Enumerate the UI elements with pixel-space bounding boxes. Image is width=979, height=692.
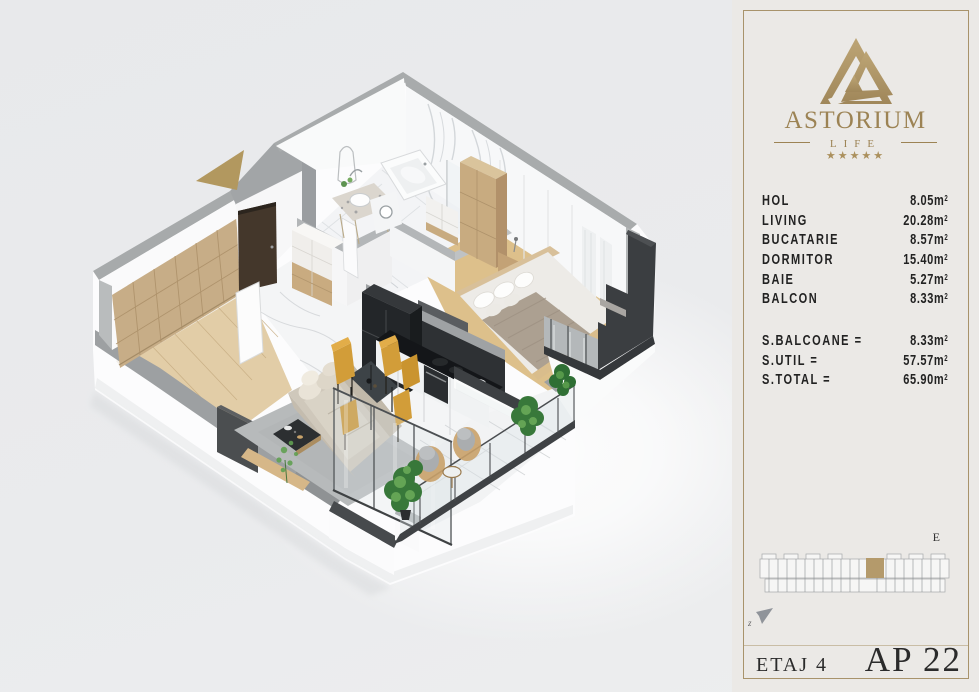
svg-text:z: z: [747, 618, 752, 628]
